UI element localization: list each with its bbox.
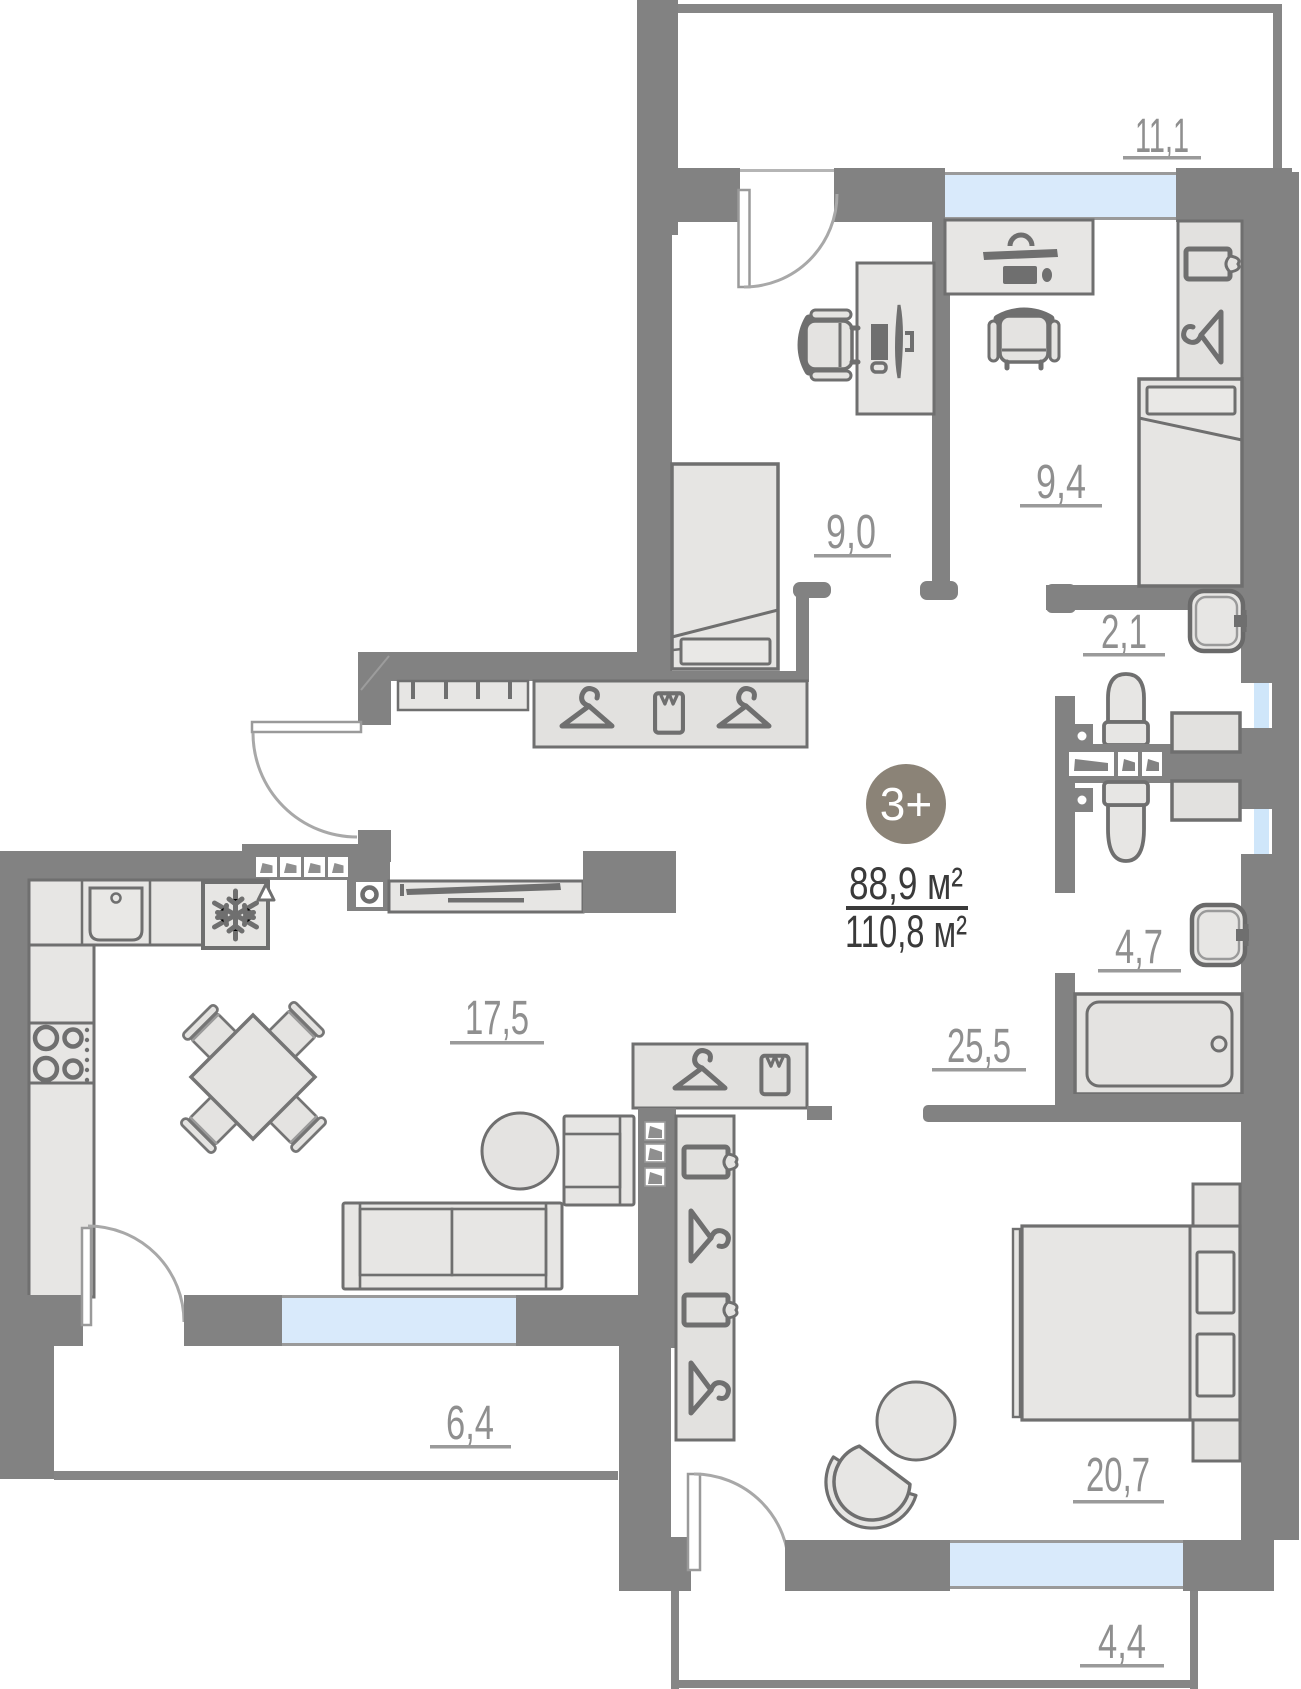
svg-text:3+: 3+ [880,778,932,830]
svg-text:110,8 м²: 110,8 м² [845,906,967,957]
svg-text:6,4: 6,4 [446,1397,494,1450]
svg-text:11,1: 11,1 [1135,110,1189,163]
svg-text:4,7: 4,7 [1115,921,1163,974]
svg-text:9,0: 9,0 [826,506,876,559]
svg-text:20,7: 20,7 [1086,1449,1150,1502]
svg-text:4,4: 4,4 [1098,1616,1146,1669]
svg-text:88,9 м²: 88,9 м² [849,858,963,909]
svg-text:9,4: 9,4 [1036,456,1086,509]
svg-text:25,5: 25,5 [947,1020,1011,1073]
svg-text:2,1: 2,1 [1101,606,1147,659]
svg-text:17,5: 17,5 [465,992,529,1045]
